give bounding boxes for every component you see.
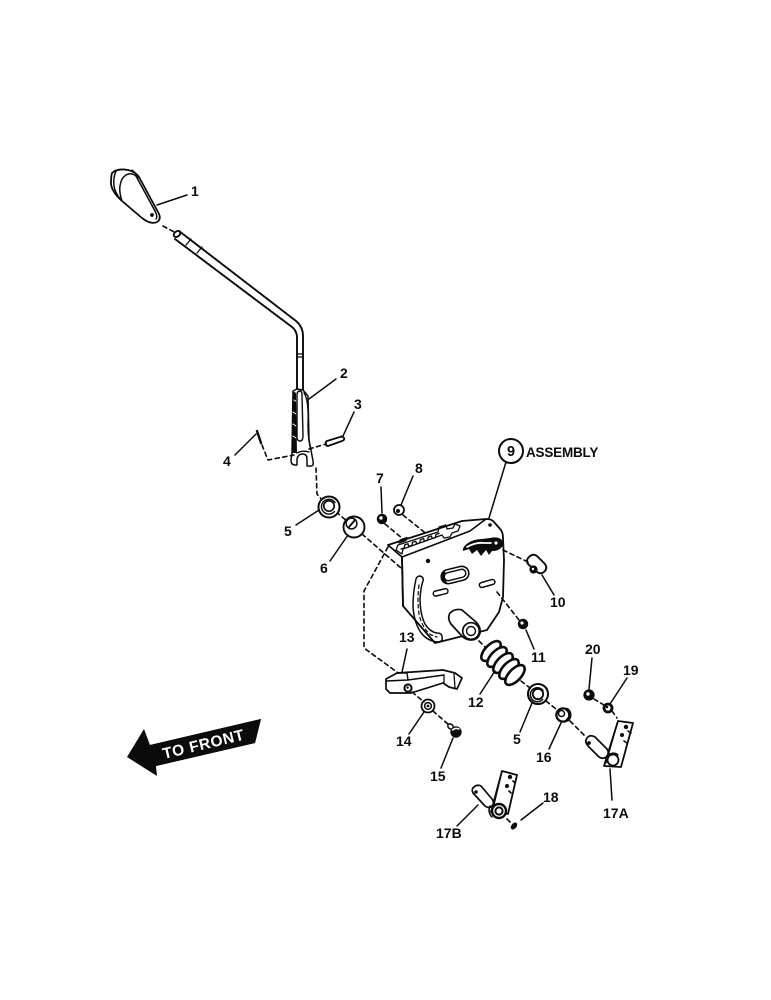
svg-text:12: 12 xyxy=(468,694,484,710)
svg-text:1: 1 xyxy=(191,183,199,199)
svg-text:17A: 17A xyxy=(603,805,629,821)
svg-text:9: 9 xyxy=(507,444,515,460)
svg-text:4: 4 xyxy=(223,453,231,469)
svg-text:TO FRONT: TO FRONT xyxy=(161,727,246,763)
svg-text:2: 2 xyxy=(340,365,348,381)
svg-text:17B: 17B xyxy=(436,825,462,841)
svg-text:13: 13 xyxy=(399,629,415,645)
svg-text:16: 16 xyxy=(536,749,552,765)
svg-text:5: 5 xyxy=(284,523,292,539)
svg-text:7: 7 xyxy=(376,470,384,486)
svg-text:10: 10 xyxy=(550,594,566,610)
svg-text:15: 15 xyxy=(430,768,446,784)
svg-text:11: 11 xyxy=(531,649,546,665)
svg-text:14: 14 xyxy=(396,733,412,749)
svg-text:6: 6 xyxy=(320,560,328,576)
svg-text:8: 8 xyxy=(415,460,423,476)
svg-text:18: 18 xyxy=(543,789,559,805)
svg-text:19: 19 xyxy=(623,662,639,678)
svg-text:20: 20 xyxy=(585,641,601,657)
svg-text:ASSEMBLY: ASSEMBLY xyxy=(526,445,598,460)
svg-text:5: 5 xyxy=(513,731,521,747)
svg-text:3: 3 xyxy=(354,396,362,412)
